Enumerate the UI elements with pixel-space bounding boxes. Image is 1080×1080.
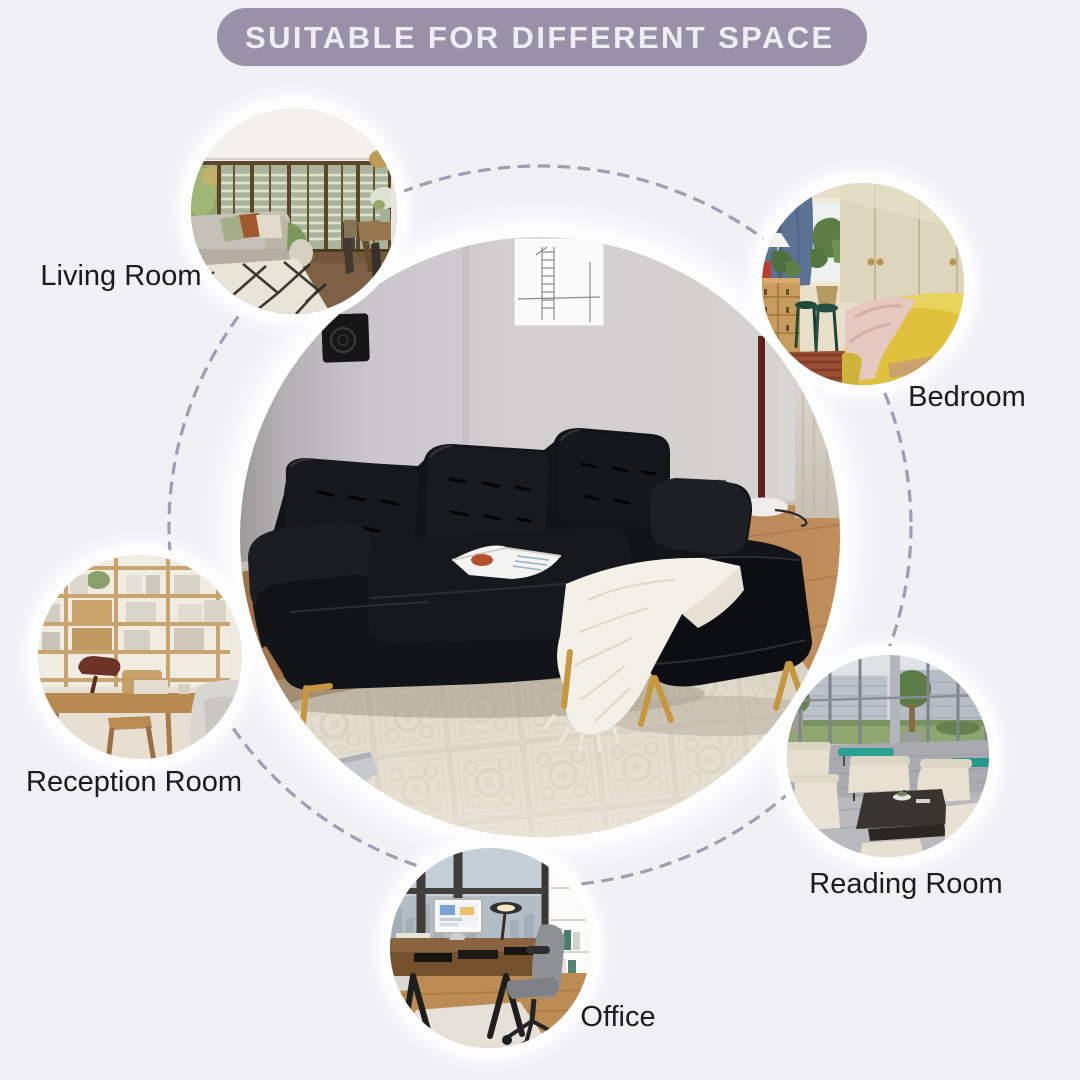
svg-text:Reception Room: Reception Room [26, 766, 242, 798]
svg-text:Office: Office [580, 1001, 655, 1033]
svg-text:SUITABLE FOR DIFFERENT SPACE: SUITABLE FOR DIFFERENT SPACE [245, 20, 835, 55]
svg-text:Living Room: Living Room [40, 260, 201, 292]
svg-text:Reading Room: Reading Room [809, 868, 1002, 900]
svg-text:Bedroom: Bedroom [908, 381, 1026, 413]
